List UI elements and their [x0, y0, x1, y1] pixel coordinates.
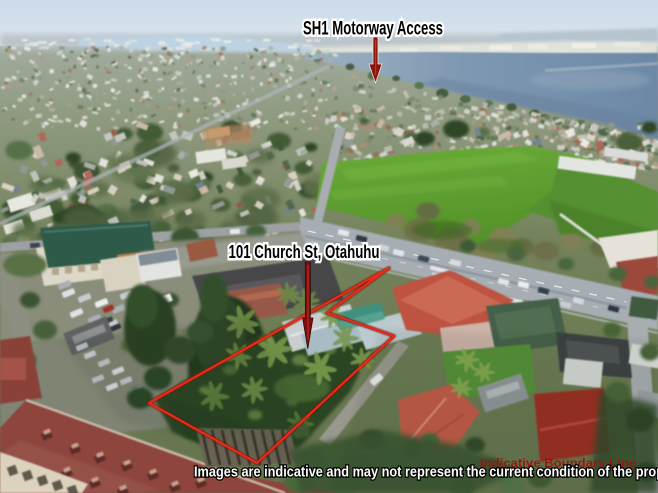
svg-text:101 Church St, Otahuhu: 101 Church St, Otahuhu: [229, 242, 380, 262]
svg-text:SH1 Motorway Access: SH1 Motorway Access: [303, 19, 443, 40]
svg-text:Images are indicative and may: Images are indicative and may not repres…: [194, 465, 658, 481]
